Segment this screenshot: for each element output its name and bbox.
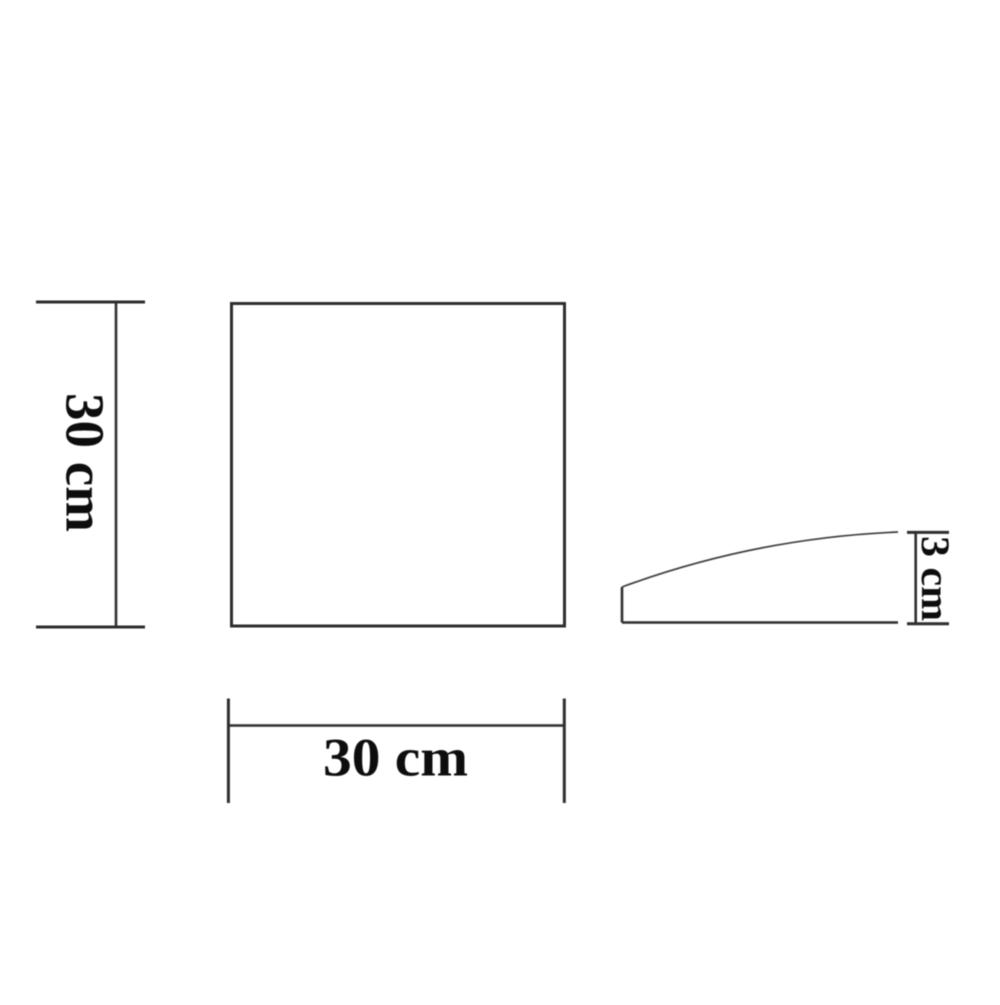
svg-text:3 cm: 3 cm [913,536,958,621]
svg-text:30 cm: 30 cm [54,393,115,532]
svg-text:30 cm: 30 cm [323,727,468,787]
